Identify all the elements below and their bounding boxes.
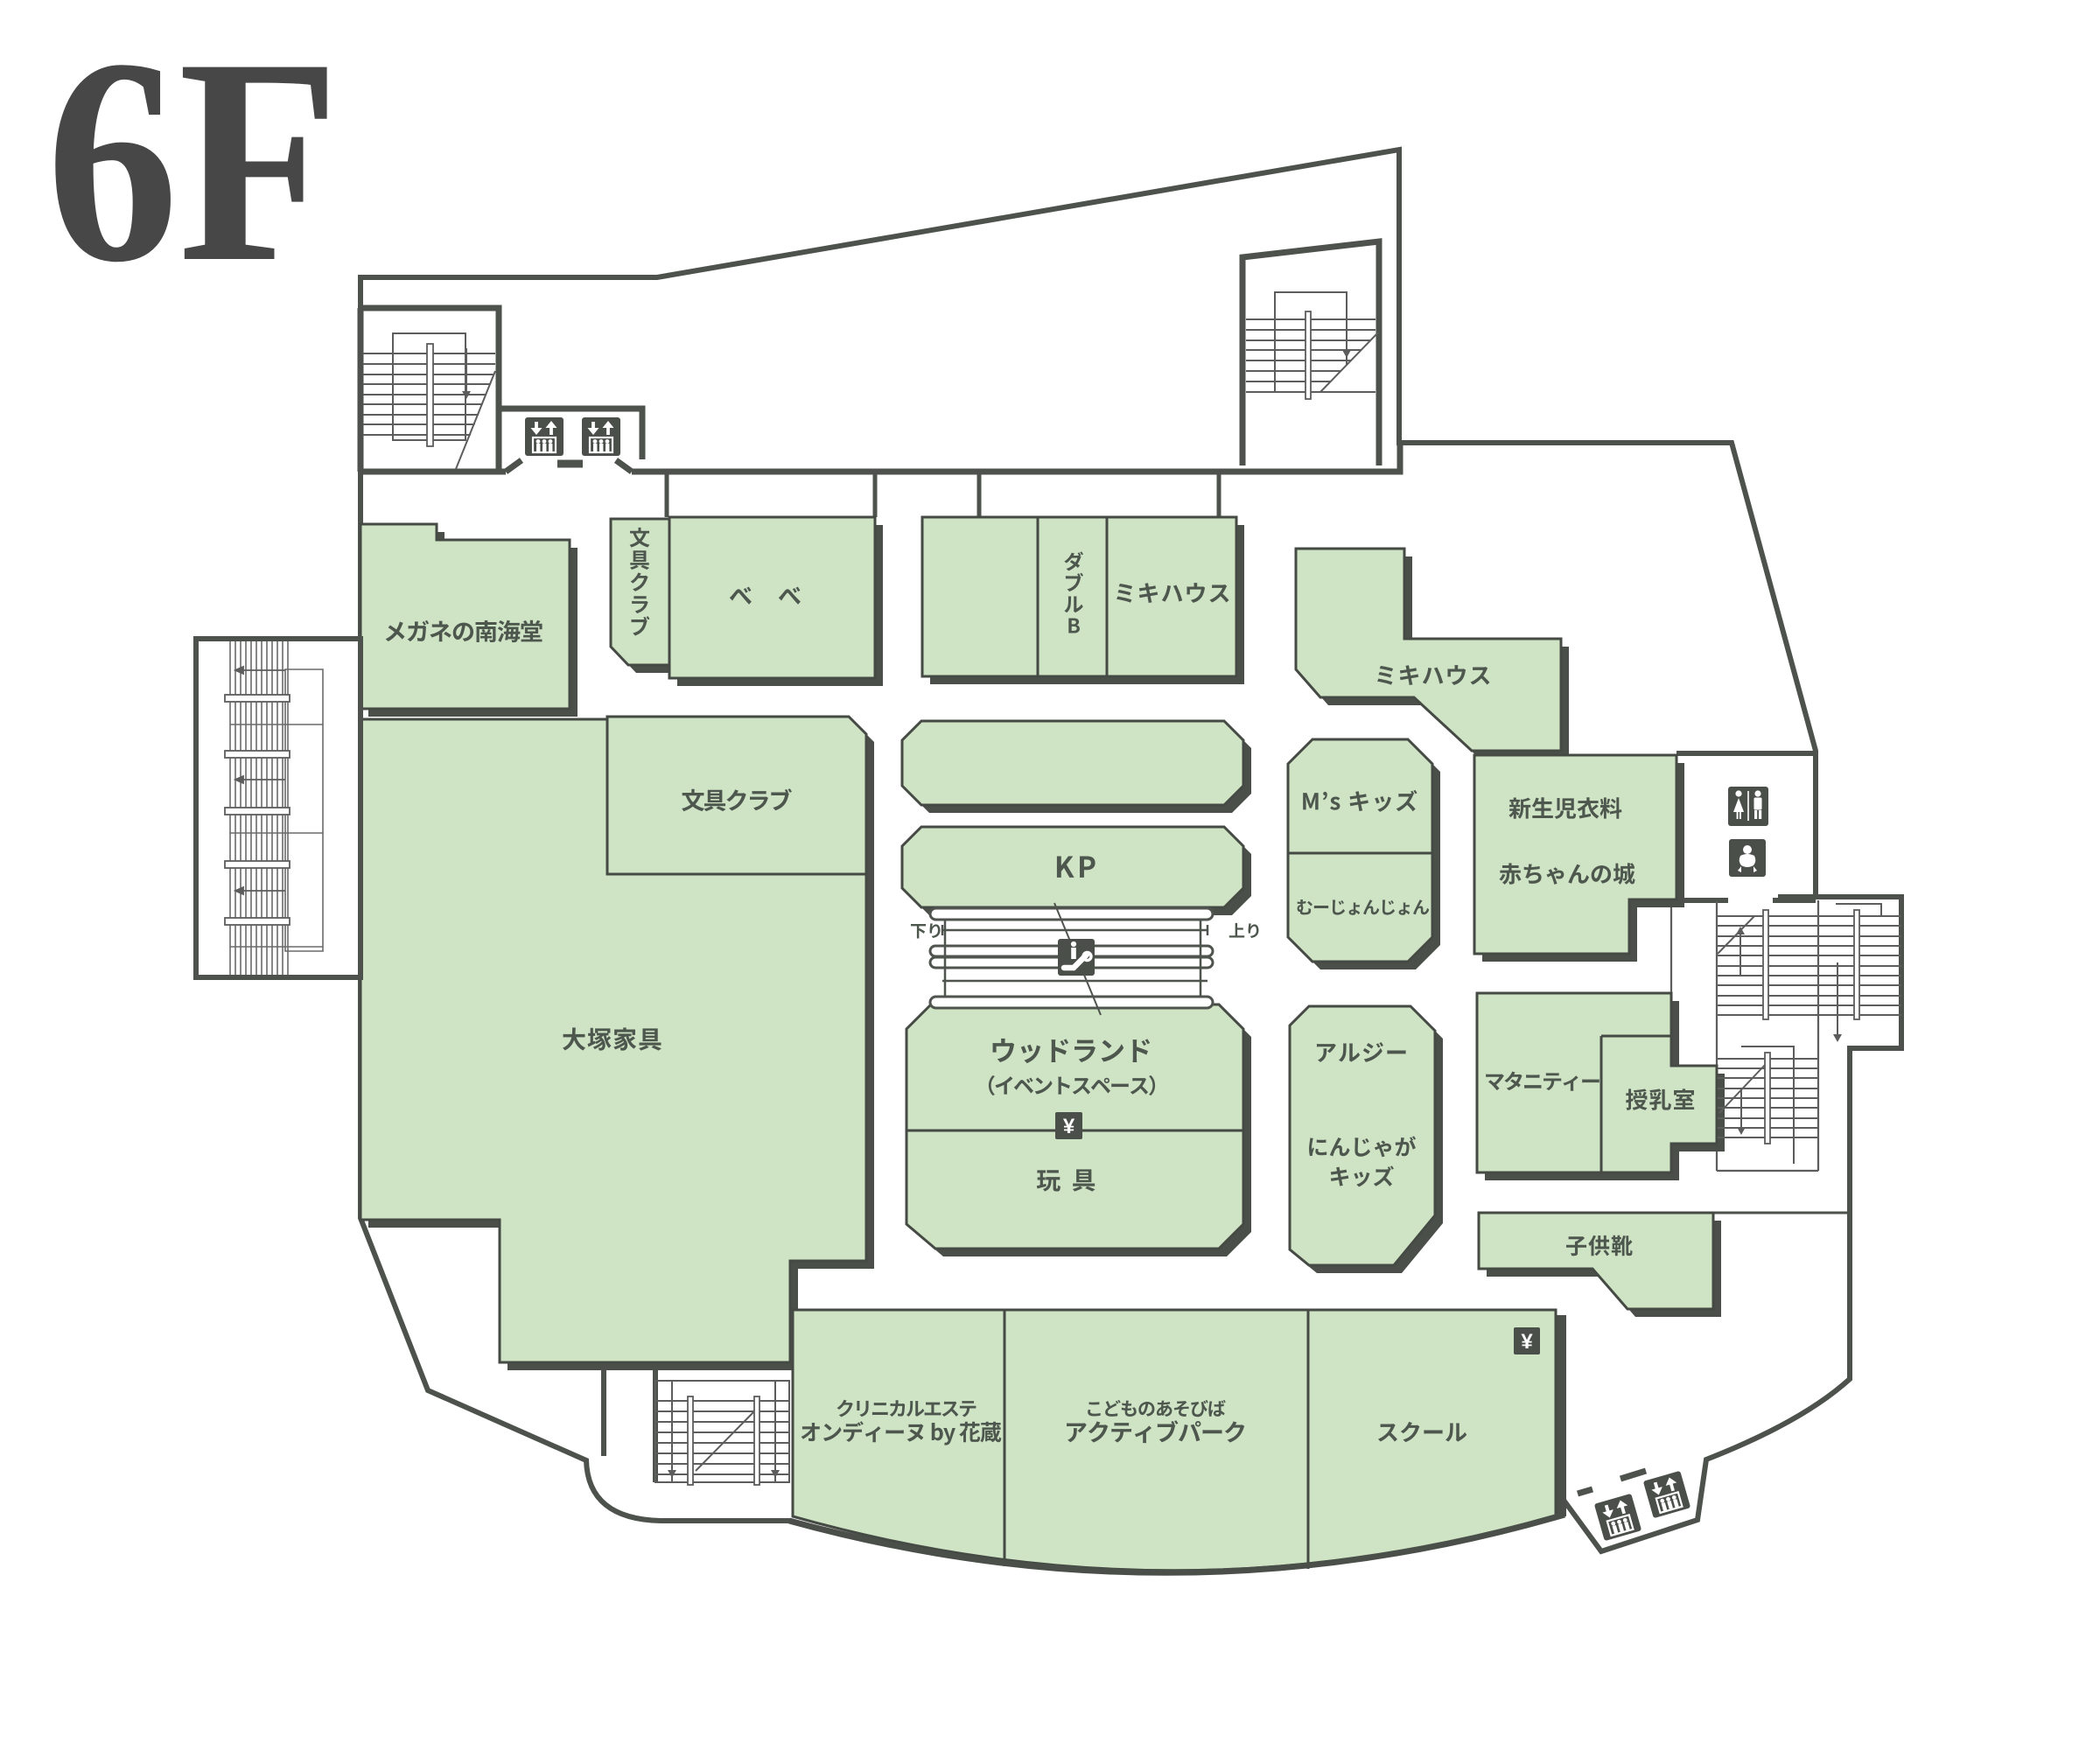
svg-text:6F: 6F [46,0,339,323]
svg-text:¥: ¥ [1521,1330,1533,1354]
svg-text:¥: ¥ [1063,1115,1075,1138]
